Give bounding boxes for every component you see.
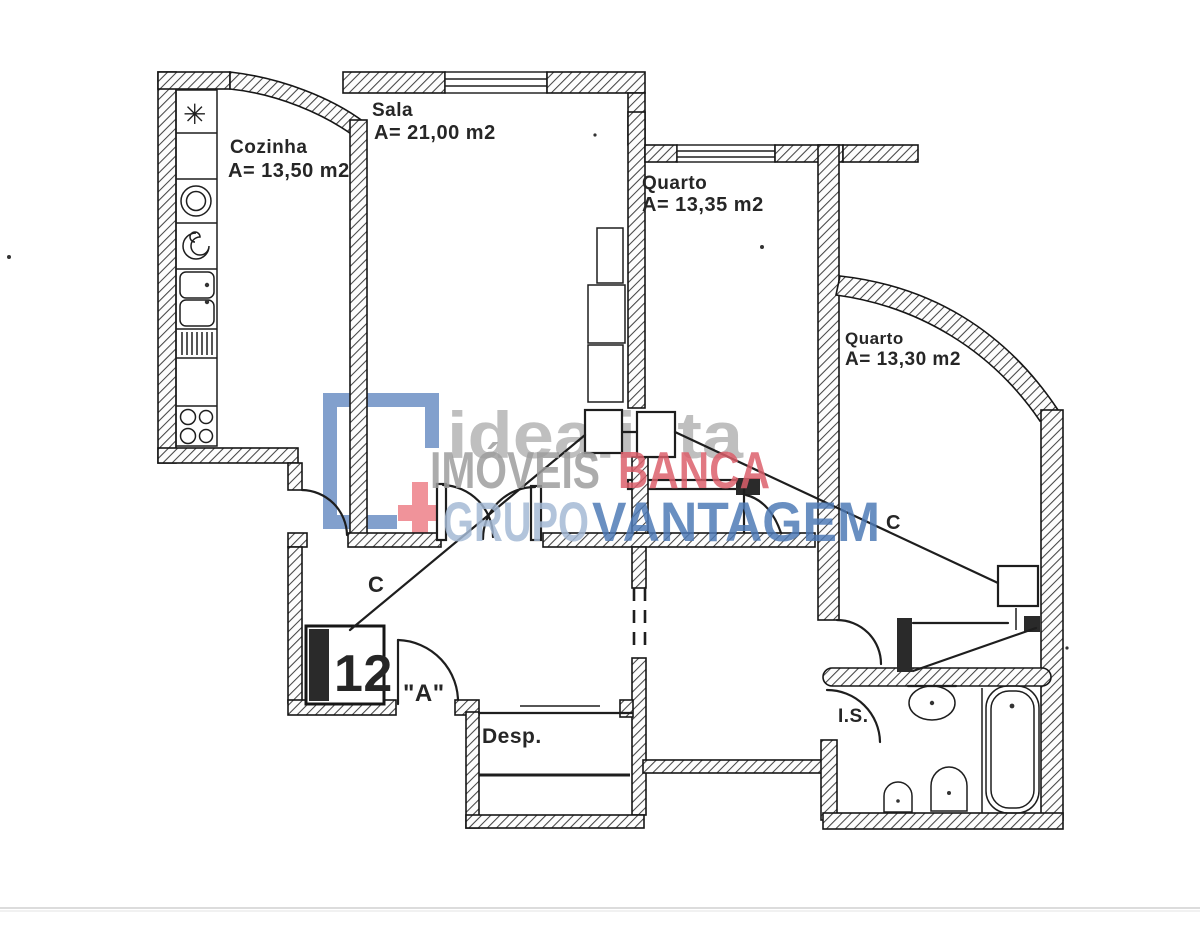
room-label-quarto2: Quarto xyxy=(845,329,904,348)
floor-plan-drawing: idealista ✳ xyxy=(0,0,1200,925)
despensa-left-wall xyxy=(466,712,479,828)
unit-number: 12 xyxy=(334,645,393,703)
watermark-vantagem: VANTAGEM xyxy=(592,490,880,553)
room-area-quarto2: A= 13,30 m2 xyxy=(845,349,961,370)
hall-left-wall-lower xyxy=(288,547,302,703)
appliance-ring-icon xyxy=(181,186,211,216)
room-label-cozinha: Cozinha xyxy=(230,137,307,158)
kitchen-bottom-wall xyxy=(158,448,298,463)
washbasin xyxy=(908,686,956,720)
shaft-fill xyxy=(309,629,329,701)
watermark-grupo: GRUPO xyxy=(443,490,589,553)
room-label-is: I.S. xyxy=(838,706,869,727)
agency-watermark: IMÓVEIS BANCA GRUPO VANTAGEM xyxy=(430,442,880,553)
unit-number-box: 12 xyxy=(306,626,393,704)
kitchen-counter-outline xyxy=(176,90,217,446)
hall-left-wall-upper xyxy=(288,463,302,490)
door-jamb xyxy=(288,533,307,547)
room-despensa: Desp. xyxy=(466,706,644,828)
entrance-door-label: "A" xyxy=(403,680,445,707)
bidet xyxy=(884,782,912,812)
corridor-divider-wall xyxy=(897,618,912,672)
sala-shelving xyxy=(588,228,625,402)
drainboard-lines xyxy=(182,332,212,355)
kitchen-sink-basin-2 xyxy=(180,300,214,326)
closet-label-left: C xyxy=(368,572,384,597)
kitchen-top-wall xyxy=(158,72,230,89)
room-label-quarto1: Quarto xyxy=(642,173,707,194)
freezer-star-icon: ✳ xyxy=(183,100,206,131)
room-area-sala: A= 21,00 m2 xyxy=(374,122,496,144)
despensa-bottom-wall xyxy=(466,815,644,828)
scan-speck xyxy=(1065,646,1068,649)
corridor-diagonal-line xyxy=(913,628,1036,671)
quarto2-door-arc xyxy=(837,620,881,664)
closet-box-right xyxy=(998,566,1038,606)
scan-speck xyxy=(593,133,596,136)
kitchen-left-wall xyxy=(158,72,176,463)
tap-dot xyxy=(205,283,209,287)
bathtub xyxy=(986,686,1039,813)
quarto1-window xyxy=(677,145,775,162)
floor-plan-page: idealista ✳ xyxy=(0,0,1200,925)
sala-top-wall-left xyxy=(343,72,445,93)
sala-top-wall-right xyxy=(547,72,645,93)
wall-bump xyxy=(620,700,633,717)
room-area-quarto1: A= 13,35 m2 xyxy=(642,194,764,216)
room-label-sala: Sala xyxy=(372,100,413,121)
center-wall-column-low xyxy=(632,658,646,815)
bathroom-left-wall xyxy=(821,740,837,820)
spiral-hob-icon xyxy=(183,232,209,259)
quarto1-top-wall-left xyxy=(645,145,677,162)
bathroom-bottom-wall xyxy=(823,813,1063,829)
kitchen-fixtures: ✳ xyxy=(176,90,217,446)
sala-quarto-wall xyxy=(628,112,645,408)
bathroom-top-wall xyxy=(823,668,1051,686)
appliance-ring-inner xyxy=(187,192,206,211)
kitchen-sala-wall xyxy=(350,120,367,537)
room-label-despensa: Desp. xyxy=(482,725,542,748)
bathroom: I.S. xyxy=(821,608,1063,829)
exterior-top-stub xyxy=(843,145,918,162)
scan-speck xyxy=(7,255,11,259)
sala-window xyxy=(445,72,547,93)
tap-dot xyxy=(205,300,209,304)
quarto2-right-wall xyxy=(1041,410,1063,820)
sala-bottom-wall-left xyxy=(348,533,441,547)
stove-burners xyxy=(181,410,213,444)
hall-bottom-wall-right xyxy=(643,760,833,773)
toilet xyxy=(931,767,967,811)
scan-speck xyxy=(760,245,764,249)
center-wall-column-mid xyxy=(632,547,646,588)
closet-label-right: C xyxy=(886,512,901,534)
room-area-cozinha: A= 13,50 m2 xyxy=(228,160,350,182)
